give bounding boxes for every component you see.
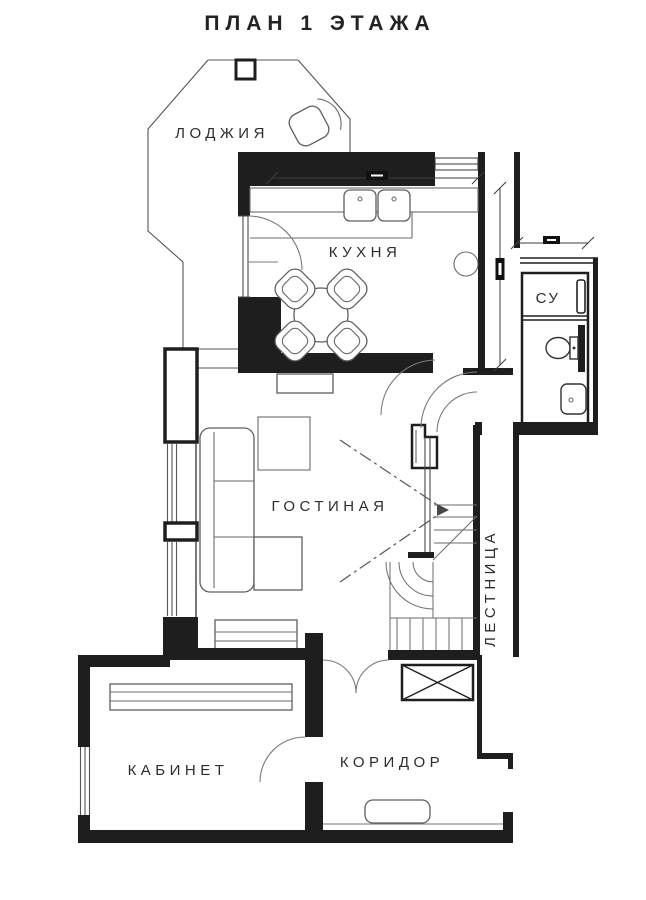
living-room-label: ГОСТИНАЯ <box>272 498 389 515</box>
staircase-label: ЛЕСТНИЦА <box>482 529 499 647</box>
loggia-label: ЛОДЖИЯ <box>175 125 269 142</box>
window-icon <box>168 541 177 616</box>
sideboard-icon <box>215 620 297 651</box>
wall-pier <box>165 349 197 442</box>
loggia-window-icon <box>236 60 255 79</box>
office: КАБИНЕТ <box>110 684 305 782</box>
toilet-icon <box>546 337 578 359</box>
wash-basin-icon <box>561 384 586 414</box>
towel-radiator-icon <box>577 280 585 313</box>
wardrobe-icon <box>110 684 292 710</box>
floor-plan-canvas: ПЛАН 1 ЭТАЖА ЛОДЖИЯ <box>0 0 646 900</box>
window-icon <box>81 747 90 817</box>
duct-shaft <box>578 325 585 372</box>
under-stair-storage-icon <box>402 665 473 700</box>
hall-door-arc-icon <box>437 392 477 432</box>
window-icon <box>168 443 177 522</box>
loggia-chair-icon <box>285 93 346 150</box>
kitchen-label: КУХНЯ <box>329 244 402 261</box>
boiler-icon <box>454 252 478 276</box>
tv-stand-icon <box>277 374 333 393</box>
stair-hall-walls <box>388 372 519 660</box>
office-label: КАБИНЕТ <box>128 762 229 779</box>
corridor-label: КОРИДОР <box>340 754 444 771</box>
bench-icon <box>365 800 430 823</box>
dining-set <box>271 265 371 365</box>
stairs-icon: ЛЕСТНИЦА <box>386 505 499 700</box>
dimension-horizontal-bathroom <box>511 236 594 249</box>
side-table-icon <box>258 417 310 470</box>
kitchen-window-icon <box>435 158 478 170</box>
bathroom: СУ <box>475 258 598 435</box>
hall-door-arc-icon <box>421 372 477 428</box>
office-door-arc-icon <box>260 737 305 782</box>
wall-pier <box>165 523 197 540</box>
floor-plan-page: ПЛАН 1 ЭТАЖА ЛОДЖИЯ <box>0 0 646 900</box>
dimension-vertical-right <box>494 182 506 371</box>
double-sink-icon <box>344 190 410 221</box>
bathroom-label: СУ <box>536 290 561 307</box>
page-title: ПЛАН 1 ЭТАЖА <box>204 12 435 35</box>
double-door-arc-icon <box>323 660 389 693</box>
living-room: ГОСТИНАЯ <box>163 349 449 655</box>
